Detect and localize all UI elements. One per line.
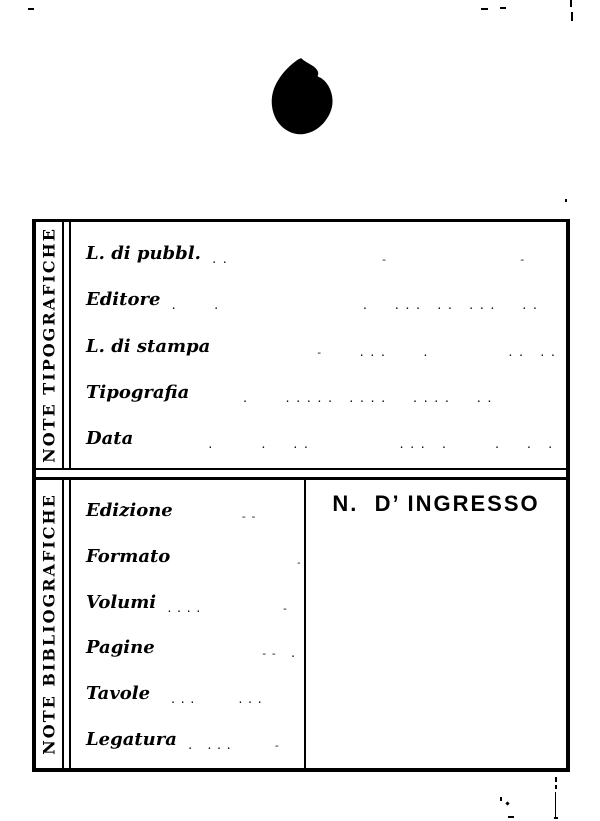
field-row-pagine: Pagine -- . [86, 625, 300, 671]
dotted-leader: -- [173, 498, 300, 523]
scan-speck [571, 12, 573, 21]
field-label: L. di stampa [86, 336, 210, 357]
dotted-leader: . . .. ... . . . ...... . . [133, 426, 560, 451]
section-note-tipografiche: NOTE TIPOGRAFICHE L. di pubbl. .. - - Ed… [36, 222, 566, 468]
scan-speck [570, 0, 572, 7]
scan-speck [481, 8, 488, 10]
dotted-leader: .. - - [201, 241, 560, 266]
side-column-bibliografiche: NOTE BIBLIOGRAFICHE [36, 480, 62, 768]
dotted-leader: .... - [156, 590, 300, 615]
field-label: Pagine [86, 637, 155, 658]
scan-speck [505, 801, 509, 805]
dotted-leader: - ... . .. .. [210, 334, 560, 359]
ingresso-box: N. D’ INGRESSO [304, 480, 566, 768]
double-rule-divider [62, 480, 71, 768]
field-label: L. di pubbl. [86, 243, 201, 264]
dotted-leader: . . . ... .. ... .. .. [160, 287, 560, 312]
dotted-leader: . ... - [177, 727, 300, 752]
field-label: Tavole [86, 683, 150, 704]
scan-dashed-line [555, 785, 557, 789]
field-row-formato: Formato -- [86, 534, 300, 580]
scan-speck [500, 797, 502, 801]
field-label: Formato [86, 546, 170, 567]
section-note-bibliografiche: NOTE BIBLIOGRAFICHE Edizione -- Formato … [36, 480, 566, 768]
field-label: Edizione [86, 500, 173, 521]
field-row-l-di-pubbl: L. di pubbl. .. - - [86, 230, 560, 276]
fields-bibliografiche: Edizione -- Formato -- Volumi .... - Pag… [71, 480, 304, 768]
scan-speck [565, 199, 567, 202]
field-row-l-di-stampa: L. di stampa - ... . .. .. [86, 323, 560, 369]
side-label-bibliografiche: NOTE BIBLIOGRAFICHE [40, 493, 59, 755]
field-label: Editore [86, 289, 160, 310]
dotted-leader: -- [170, 544, 300, 569]
field-row-editore: Editore . . . ... .. ... .. .. [86, 276, 560, 322]
scan-dashed-line [555, 792, 556, 818]
dotted-leader: ... ... [150, 681, 300, 706]
side-column-tipografiche: NOTE TIPOGRAFICHE [36, 222, 62, 468]
double-rule-divider [62, 222, 71, 468]
field-row-volumi: Volumi .... - [86, 579, 300, 625]
field-row-edizione: Edizione -- [86, 488, 300, 534]
dotted-leader: -- . [155, 635, 300, 660]
catalog-card: NOTE TIPOGRAFICHE L. di pubbl. .. - - Ed… [32, 219, 570, 772]
field-row-tipografia: Tipografia . ..... .... .... .. . .. [86, 369, 560, 415]
field-label: Volumi [86, 592, 156, 613]
scanned-card-page: NOTE TIPOGRAFICHE L. di pubbl. .. - - Ed… [0, 0, 600, 821]
scan-speck [554, 817, 558, 819]
scan-speck [500, 7, 506, 9]
section-divider-double-rule [36, 468, 566, 480]
dotted-leader: . ..... .... .... .. . .. [189, 380, 560, 405]
field-label: Tipografia [86, 382, 189, 403]
fields-tipografiche: L. di pubbl. .. - - Editore . . . ... ..… [71, 222, 566, 468]
scan-dashed-line [555, 777, 557, 782]
field-label: Data [86, 428, 133, 449]
field-row-data: Data . . .. ... . . . ...... . . [86, 416, 560, 462]
side-label-tipografiche: NOTE TIPOGRAFICHE [40, 227, 59, 463]
field-row-legatura: Legatura . ... - [86, 716, 300, 762]
field-row-tavole: Tavole ... ... [86, 671, 300, 717]
scan-speck [28, 8, 34, 10]
field-label: Legatura [86, 729, 177, 750]
ink-blot-icon [269, 56, 336, 138]
scan-speck [508, 816, 514, 818]
ingresso-heading: N. D’ INGRESSO [332, 491, 539, 517]
